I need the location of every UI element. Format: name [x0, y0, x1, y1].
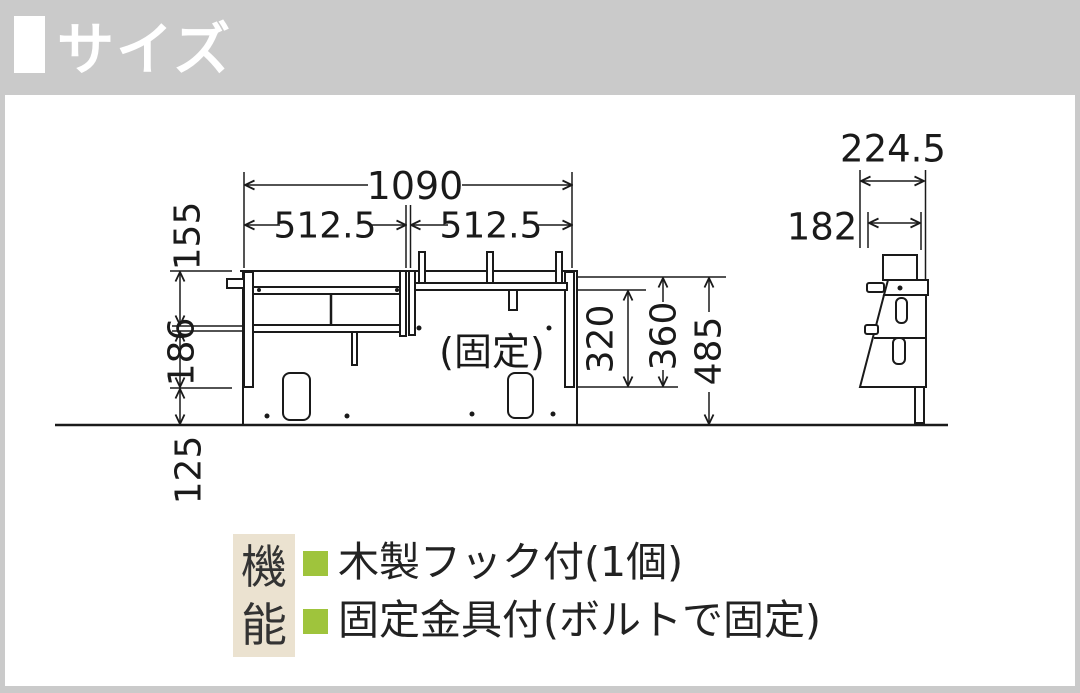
dim-height-total-label: 485	[689, 317, 730, 386]
dim-width-left-label: 512.5	[273, 206, 376, 247]
dim-height-rail-label: 360	[644, 302, 685, 371]
front-view: (固定)	[227, 252, 578, 425]
dim-height-mid-label: 186	[162, 318, 203, 387]
left-hook-tab	[227, 279, 244, 288]
feature-item-label: 木製フック付(1個)	[338, 542, 683, 583]
dim-width-left: 512.5	[245, 206, 406, 247]
dim-height-inner-label: 320	[581, 305, 622, 374]
side-slot-upper	[896, 298, 907, 323]
feature-item-label: 固定金具付(ボルトで固定)	[338, 600, 821, 641]
dim-height-mid: 186	[162, 318, 203, 387]
left-bracket-post	[244, 272, 253, 387]
side-top-bar	[884, 280, 928, 295]
left-slot	[283, 373, 310, 420]
right-slot	[508, 373, 533, 418]
right-rail-fixed	[415, 283, 567, 290]
left-rail-bottom	[253, 325, 405, 332]
hanger-peg-3	[556, 252, 562, 283]
wooden-hook	[509, 290, 517, 310]
dimension-drawing: (固定) 1090 512.5 512.5	[0, 0, 1080, 693]
center-post-right	[409, 271, 415, 335]
screw-dot	[257, 288, 261, 292]
left-rail-top	[253, 287, 400, 294]
bolt-dot	[345, 414, 350, 419]
side-view	[860, 255, 928, 423]
fixed-label: (固定)	[439, 330, 545, 374]
dim-height-lower-label: 125	[169, 436, 210, 505]
dim-depth-upper-label: 182	[787, 206, 858, 249]
features-heading: 機能	[233, 534, 295, 657]
feature-bullet-square	[303, 551, 328, 576]
side-slot-lower	[893, 338, 905, 364]
dim-height-total: 485	[689, 278, 730, 424]
hanger-peg-1	[419, 252, 425, 283]
dim-depth-total-label: 224.5	[840, 128, 946, 171]
dim-height-upper-label: 155	[168, 202, 209, 271]
bolt-dot	[547, 326, 552, 331]
page: サイズ	[0, 0, 1080, 693]
bolt-dot	[265, 414, 270, 419]
center-post-left	[400, 271, 406, 336]
shelf-support-leg	[352, 332, 357, 365]
bolt-dot	[470, 412, 475, 417]
dim-width-total-label: 1090	[367, 164, 464, 208]
dim-height-upper: 155	[168, 202, 209, 325]
dim-width-right: 512.5	[411, 206, 572, 247]
side-back-post	[915, 387, 924, 423]
hanger-peg-2	[487, 252, 493, 283]
dim-height-inner: 320	[581, 291, 629, 386]
side-hook-tab-upper	[867, 283, 884, 292]
dim-depth-upper: 182	[787, 206, 920, 249]
bolt-dot	[551, 412, 556, 417]
screw-dot	[395, 288, 399, 292]
bolt-dot	[417, 326, 422, 331]
side-hook-tab-lower	[865, 325, 878, 334]
dim-width-total: 1090	[245, 164, 572, 208]
side-bolt-dot	[898, 286, 903, 291]
side-top-cap	[883, 255, 917, 280]
feature-bullet-square	[303, 609, 328, 634]
dim-depth-total: 224.5	[840, 128, 946, 182]
dim-width-right-label: 512.5	[439, 206, 542, 247]
dim-height-lower: 125	[169, 389, 210, 504]
side-dimensions: 224.5 182	[787, 128, 946, 281]
dim-height-rail: 360	[644, 278, 685, 386]
